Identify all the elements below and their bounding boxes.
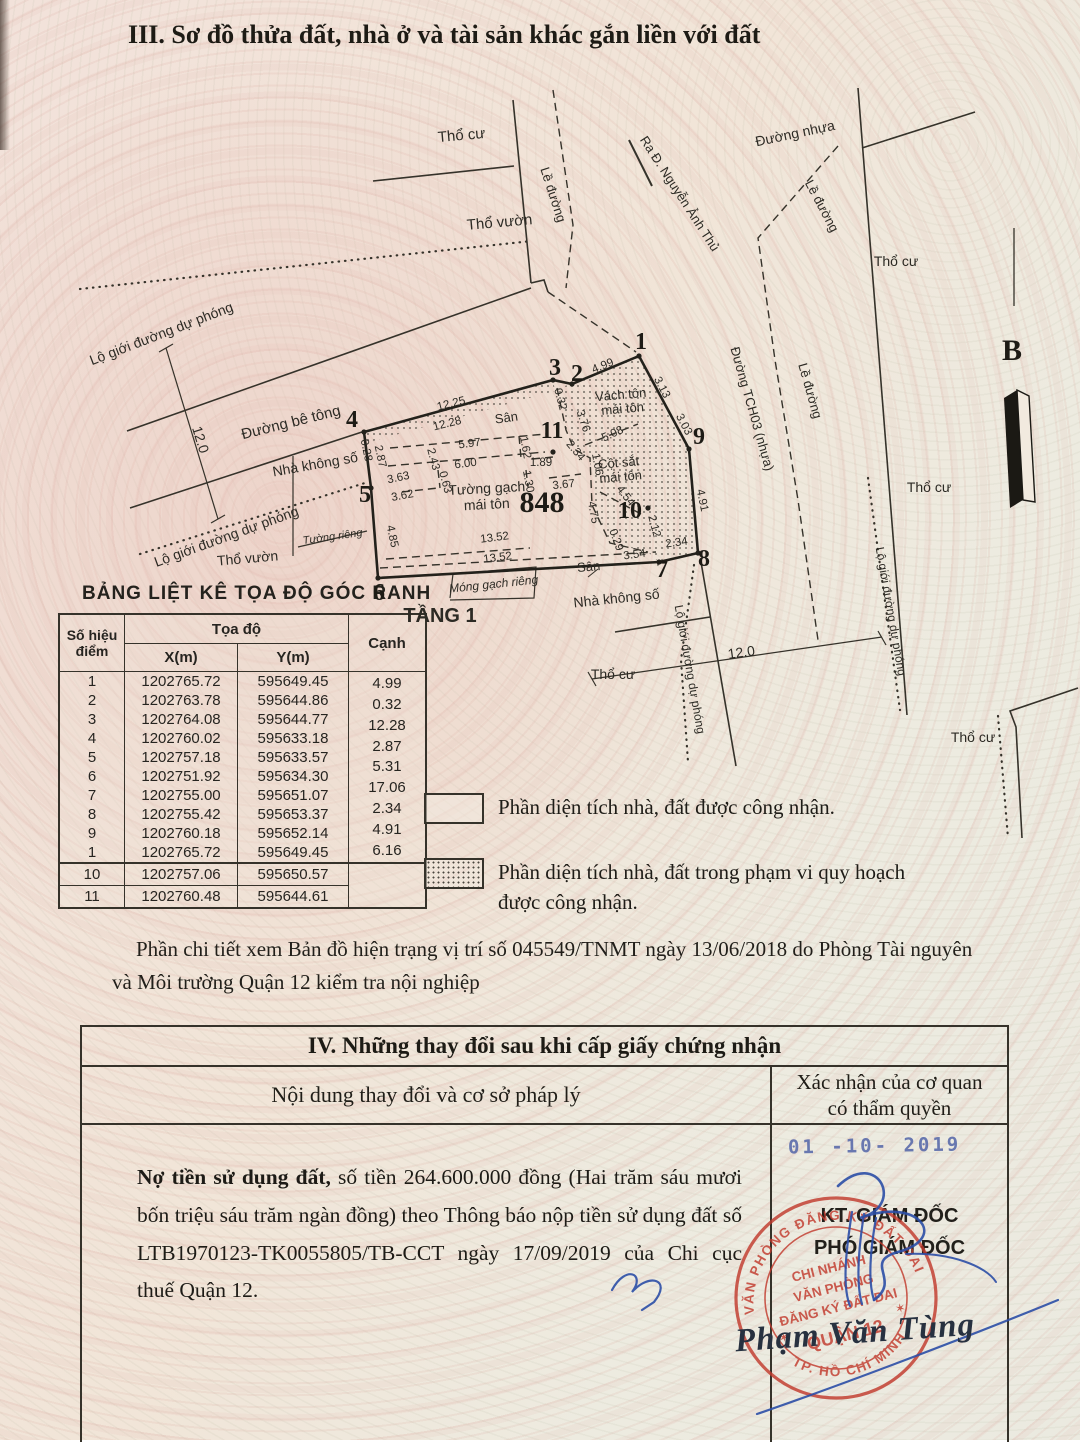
map-label: Thổ cư (907, 479, 951, 495)
map-label: Đường TCH03 (nhựa) (727, 345, 777, 472)
corner-point (656, 559, 661, 564)
map-label: Lộ giới đường dự phóng (152, 503, 301, 570)
planning-area-hatch (557, 356, 698, 562)
corner-number: 3 (549, 355, 561, 381)
dashed-line (758, 146, 838, 640)
map-label: Lề đường (537, 165, 569, 224)
map-label: Lề đường (802, 177, 842, 234)
road-line (701, 562, 736, 766)
coordinate-table-title: BẢNG LIỆT KÊ TỌA ĐỘ GÓC RANH (82, 583, 431, 605)
map-label: 12.0 (189, 424, 212, 455)
map-label: Lộ giới đường dự phóng (87, 299, 235, 369)
dashed-line (388, 452, 545, 466)
corner-point (686, 446, 691, 451)
detail-note: Phần chi tiết xem Bản đồ hiện trạng vị t… (112, 933, 997, 998)
north-arrow (1004, 390, 1023, 508)
dimension-label: 2.34 (564, 439, 588, 464)
dimension-label: 2.43 (424, 447, 441, 472)
legend-item-recognized: Phần diện tích nhà, đất được công nhận. (424, 793, 918, 824)
map-label: Vách tôn (594, 385, 646, 404)
dimension-label: 1.30 (520, 469, 536, 493)
corner-point (550, 377, 555, 382)
dashed-line (386, 548, 530, 559)
dimension-label: 3.03 (673, 412, 694, 437)
kt-giam-doc-label: KT. GIÁM ĐỐC (772, 1205, 1007, 1228)
dimension-label: 1.62 (517, 435, 533, 459)
corner-number: 4 (346, 407, 358, 433)
coordinate-table: Số hiệuđiểm Tọa độ Cạnh X(m) Y(m) 112027… (58, 613, 427, 909)
dimension-label: 13.52 (483, 550, 513, 565)
dashed-line (548, 292, 636, 352)
road-line (862, 112, 975, 148)
dimension-label: 1.89 (530, 457, 552, 469)
paragraph-bold-lead: Nợ tiền sử dụng đất, (137, 1165, 331, 1189)
map-label: mái tôn (599, 467, 643, 486)
dimension-label: 4.54 (614, 484, 638, 510)
dashed-line (390, 434, 546, 448)
dashed-line (585, 424, 638, 445)
legend-swatch-empty (424, 793, 484, 824)
map-label: Sân (576, 558, 600, 575)
dashed-line (380, 552, 656, 568)
edge-length: 0.32 (355, 696, 419, 713)
legend-label: Phần diện tích nhà, đất trong phạm vi qu… (498, 857, 928, 918)
dimension-label: 3.63 (386, 470, 410, 486)
map-label: Tường gạch (448, 478, 526, 498)
planning-area-hatch (364, 380, 555, 443)
north-arrow (1017, 390, 1035, 502)
corner-number: 5 (359, 482, 371, 508)
corner-point (550, 449, 555, 454)
road-line (211, 515, 225, 523)
dotted-setback-line (998, 716, 1008, 838)
map-label: Thổ cư (951, 729, 995, 745)
dashed-line (600, 492, 641, 514)
road-line (588, 569, 598, 577)
map-label: Thổ cư (591, 666, 635, 682)
edge-length: 4.99 (355, 675, 419, 692)
corner-point (569, 381, 574, 386)
dimension-label: 4.85 (384, 524, 400, 548)
date-stamp: 01 -10- 2019 (788, 1133, 962, 1158)
col-header-changes: Nội dung thay đổi và cơ sở pháp lý (82, 1067, 770, 1125)
coordinate-table-block: BẢNG LIỆT KÊ TỌA ĐỘ GÓC RANH Số hiệuđiểm… (58, 583, 431, 909)
certificate-page: III. Sơ đồ thửa đất, nhà ở và tài sản kh… (0, 0, 1080, 1440)
road-line (858, 88, 907, 715)
col-header-coords: Tọa độ (125, 614, 349, 644)
map-label: Tường riêng (302, 527, 364, 547)
land-fee-paragraph: Nợ tiền sử dụng đất, số tiền 264.600.000… (137, 1159, 742, 1310)
road-line (159, 344, 173, 352)
map-label: Lề đường (795, 361, 825, 420)
dotted-setback-line (681, 565, 694, 762)
dimension-label: 6.00 (454, 457, 478, 472)
map-label: Nhà không số (573, 586, 661, 611)
road-line (629, 140, 652, 186)
corner-point (368, 485, 373, 490)
dimension-label: 5.97 (458, 437, 482, 452)
edge-length: 4.91 (355, 821, 419, 838)
corner-point (645, 505, 650, 510)
dashed-line (438, 470, 440, 488)
corner-number: 9 (693, 424, 705, 450)
edge-length: 2.87 (355, 738, 419, 755)
dimension-label: 4.75 (585, 500, 601, 524)
col-header-edge: Cạnh (349, 614, 427, 672)
plot-number: 848 (520, 486, 565, 519)
map-label: mái tôn (463, 495, 510, 513)
dimension-label: 1.06 (589, 452, 605, 476)
dotted-setback-line (868, 478, 900, 710)
map-label: Thổ cư (874, 253, 918, 269)
map-label: Thổ vườn (466, 211, 533, 234)
dimension-label: 0.29 (606, 527, 625, 552)
dashed-line (549, 474, 581, 478)
dimension-label: 2.34 (665, 535, 689, 550)
section4-table: IV. Những thay đổi sau khi cấp giấy chứn… (80, 1025, 1009, 1442)
dimension-label: 0.28 (358, 438, 374, 462)
table-row: 101202757.06595650.57 (59, 863, 426, 886)
dotted-setback-line (80, 241, 532, 289)
map-label: Móng gạch riêng (448, 572, 539, 595)
edge-length: 6.16 (355, 842, 419, 859)
photo-edge-shadow (0, 0, 10, 150)
legend-swatch-dotted (424, 858, 484, 889)
corner-number: 1 (635, 329, 647, 355)
dimension-label: 4.99 (590, 356, 615, 376)
dimension-label: 12.28 (432, 415, 463, 434)
corner-number: 11 (541, 418, 564, 444)
dimension-label: 2.87 (372, 444, 388, 468)
dashed-line (526, 470, 528, 487)
dimension-label: 0.63 (436, 470, 453, 495)
corner-point (361, 429, 366, 434)
dimension-label: 4.91 (694, 488, 710, 512)
map-label: mái tôn (601, 399, 645, 418)
corner-point (375, 575, 380, 580)
north-label: B (1002, 334, 1022, 367)
table-row: 11202765.72595649.454.990.3212.282.875.3… (59, 672, 426, 692)
dashed-line (553, 90, 573, 288)
edge-length: 5.31 (355, 758, 419, 775)
corner-point (636, 353, 641, 358)
dimension-label: 3.67 (552, 478, 576, 492)
map-label: Đường bê tông (240, 402, 343, 443)
road-line (615, 617, 710, 632)
road-line (450, 567, 536, 600)
corner-point (695, 550, 700, 555)
section4-right-column: Xác nhận của cơ quan có thẩm quyền 01 -1… (772, 1067, 1007, 1442)
map-label: Sân (494, 409, 519, 427)
map-label: Lộ giới đường dự phóng (672, 604, 708, 735)
map-label: Thổ vườn (216, 547, 279, 568)
map-label: 12.0 (727, 642, 756, 662)
dimension-label: 3.62 (390, 488, 414, 504)
road-line (127, 288, 531, 431)
dimension-label: 12.25 (436, 395, 467, 414)
road-line (373, 166, 514, 181)
dimension-label: 13.52 (480, 530, 510, 545)
section3-title: III. Sơ đồ thửa đất, nhà ở và tài sản kh… (128, 20, 760, 50)
road-line (1010, 688, 1078, 838)
section4-title: IV. Những thay đổi sau khi cấp giấy chứn… (82, 1027, 1007, 1067)
road-line (878, 631, 886, 645)
map-label: Lộ giới đường dự phóng (873, 546, 909, 677)
road-line (166, 348, 218, 519)
dimension-label: 2.12 (645, 514, 662, 539)
pho-giam-doc-label: PHÓ GIÁM ĐỐC (772, 1237, 1007, 1260)
map-label: Ra Đ. Nguyễn Ảnh Thủ (637, 133, 723, 254)
edge-length: 12.28 (355, 717, 419, 734)
section4-left-column: Nội dung thay đổi và cơ sở pháp lý Nợ ti… (82, 1067, 772, 1442)
legend-item-planning: Phần diện tích nhà, đất trong phạm vi qu… (424, 858, 928, 918)
road-line (513, 100, 531, 283)
edge-length: 17.06 (355, 779, 419, 796)
corner-number: 7 (656, 557, 668, 583)
road-line (588, 672, 596, 686)
col-header-x: X(m) (125, 644, 238, 672)
dashed-line (557, 388, 648, 552)
map-label: Đường nhựa (754, 117, 837, 150)
dimension-label: 3.76 (574, 409, 592, 434)
col-header-confirmation: Xác nhận của cơ quan có thẩm quyền (772, 1067, 1007, 1125)
col-header-point: Số hiệuđiểm (59, 614, 125, 672)
road-line (531, 280, 548, 292)
road-line (130, 432, 362, 508)
road-line (298, 531, 367, 547)
corner-number: 2 (571, 361, 583, 387)
plot-boundary (364, 356, 698, 578)
corner-number: 8 (698, 546, 710, 572)
dimension-label: 3.54 (623, 547, 647, 562)
col-header-y: Y(m) (238, 644, 349, 672)
dashed-line (402, 488, 438, 492)
dashed-line (532, 457, 553, 459)
map-label: Thổ cư (437, 125, 486, 146)
dimension-label: 3.13 (651, 375, 672, 400)
map-label: Cột sắt (597, 453, 640, 472)
dimension-label: 0.32 (551, 387, 568, 412)
corner-number: 10 (618, 498, 642, 524)
edge-length: 2.34 (355, 800, 419, 817)
dimension-label: 5.08 (600, 424, 625, 444)
road-line (592, 637, 882, 679)
dotted-setback-line (140, 482, 368, 554)
dashed-line (519, 436, 521, 458)
legend-label: Phần diện tích nhà, đất được công nhận. (498, 792, 918, 822)
map-label: Nhà không số (271, 449, 359, 480)
